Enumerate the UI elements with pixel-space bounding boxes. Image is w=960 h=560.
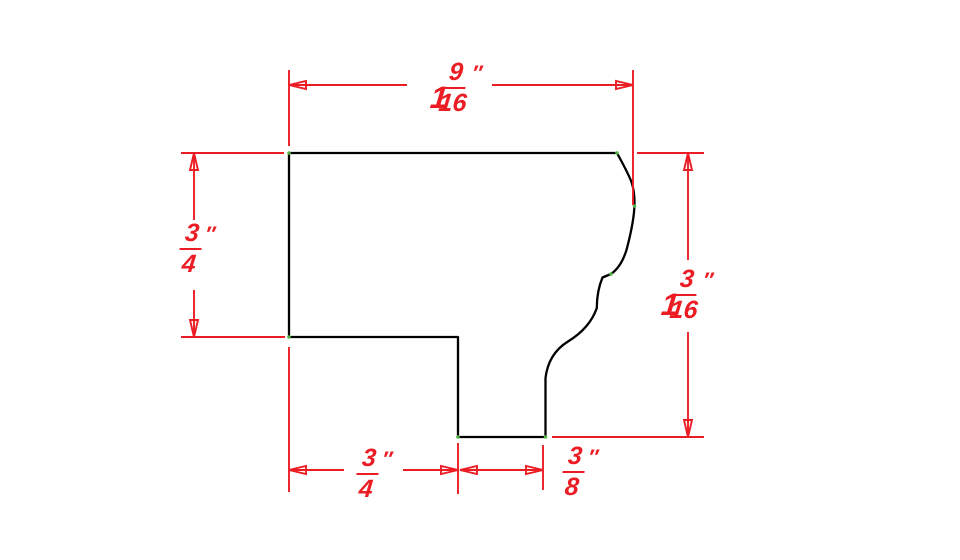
dimension-fraction: 34 [354,446,382,502]
dimension-label-bottom-left-width: 34″ [357,446,392,502]
vertex-markers [287,151,636,439]
dimension-label-right-height: 1316″ [661,267,712,323]
fraction-denominator: 4 [181,250,198,277]
inch-mark: ″ [203,224,217,245]
fraction-denominator: 8 [564,473,581,500]
fraction-denominator: 4 [358,475,375,502]
inch-mark: ″ [380,449,394,470]
dimension-fraction: 34 [177,221,205,277]
dimension-label-bottom-right-width: 38″ [563,444,598,500]
inch-mark: ″ [470,63,484,84]
vertex-dot [544,435,548,439]
vertex-dot [609,272,613,276]
profile-path [289,153,635,437]
vertex-dot [287,151,291,155]
vertex-dot [456,435,460,439]
inch-mark: ″ [586,447,600,468]
bottom-right-width-dimension [460,445,543,490]
dimension-label-top-width: 1916″ [430,60,481,116]
drawing-canvas: 1916″ 34″ 1316″ 34″ 38″ [0,0,960,560]
inch-mark: ″ [701,270,715,291]
vertex-dot [287,335,291,339]
dimension-whole-number: 1 [660,289,681,320]
dimension-whole-number: 1 [429,82,450,113]
dimension-fraction: 38 [560,444,588,500]
profile-outline [289,153,635,437]
dimension-label-left-height: 34″ [180,221,215,277]
fraction-numerator: 3 [356,446,381,475]
vertex-dot [615,151,619,155]
fraction-numerator: 3 [179,221,204,250]
fraction-numerator: 3 [562,444,587,473]
